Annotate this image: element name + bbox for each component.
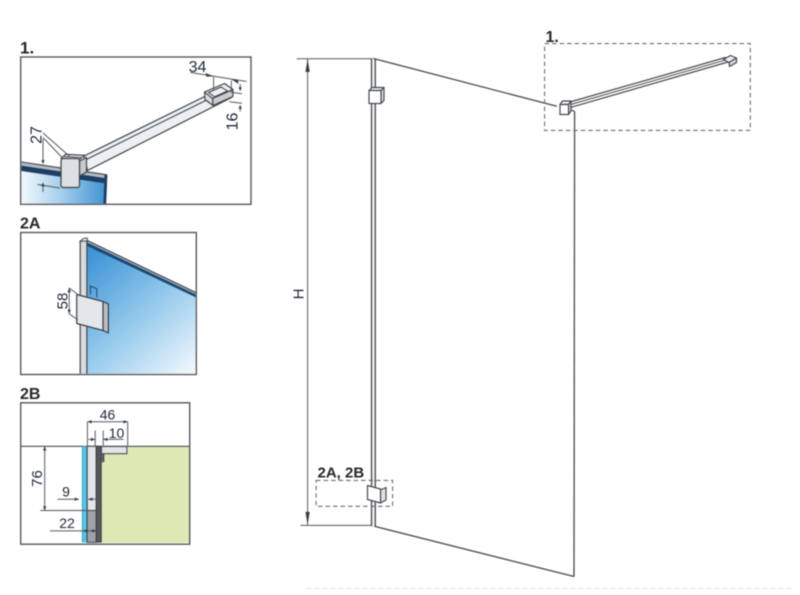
svg-text:58: 58 xyxy=(55,293,72,310)
svg-text:2A, 2B: 2A, 2B xyxy=(318,465,365,482)
svg-text:1.: 1. xyxy=(546,29,559,46)
svg-text:2A: 2A xyxy=(20,216,41,233)
svg-text:76: 76 xyxy=(29,470,46,487)
svg-text:H: H xyxy=(291,289,308,300)
svg-text:46: 46 xyxy=(100,407,116,423)
svg-text:27: 27 xyxy=(29,126,46,144)
svg-text:2B: 2B xyxy=(20,386,40,403)
svg-text:9: 9 xyxy=(62,484,70,500)
svg-text:22: 22 xyxy=(59,515,75,531)
svg-text:10: 10 xyxy=(109,425,125,441)
svg-text:34: 34 xyxy=(189,59,207,76)
svg-text:16: 16 xyxy=(225,113,242,131)
svg-text:1.: 1. xyxy=(20,39,34,58)
